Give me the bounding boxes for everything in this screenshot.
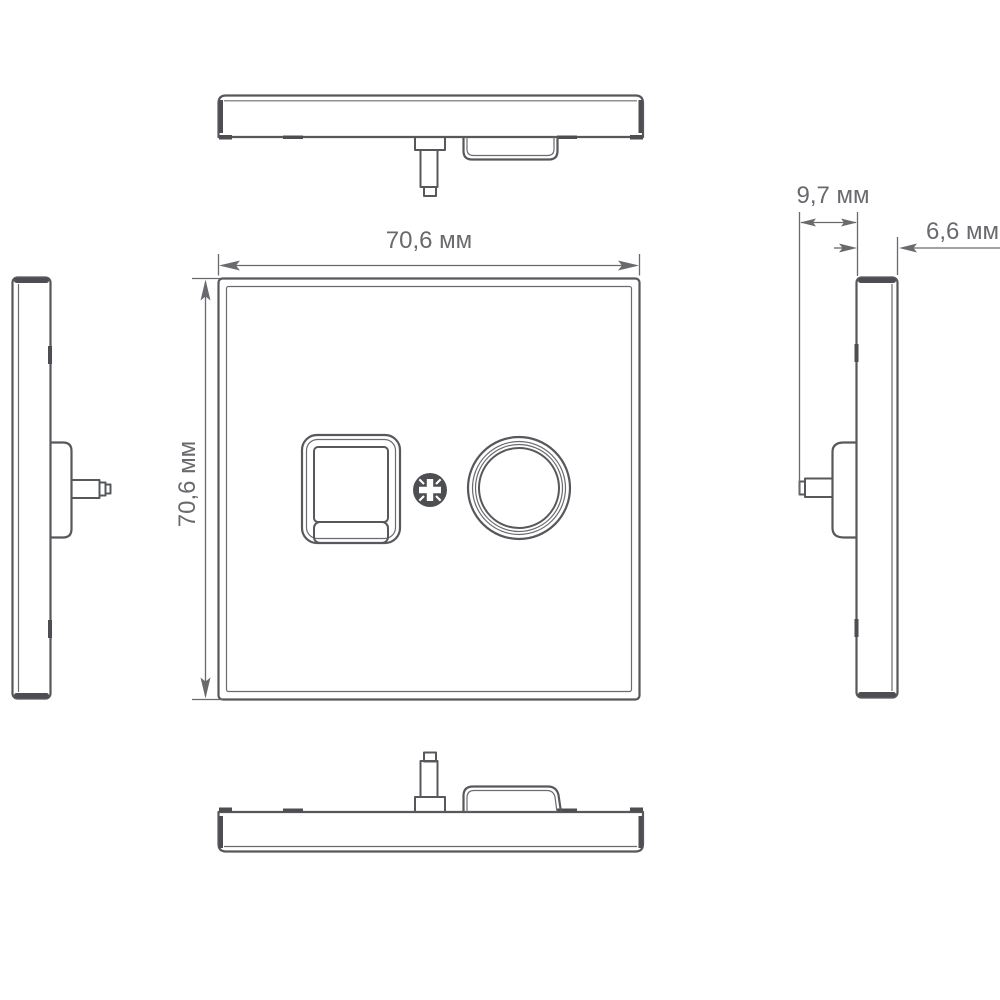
faceplate-dimension-drawing: 70,6 мм 70,6 мм 9,7 мм 6,6 мм [0, 0, 1000, 1000]
bottom-view [219, 753, 644, 852]
clip [557, 136, 577, 140]
foot [219, 135, 232, 140]
mounting-stem [800, 479, 833, 498]
connector-housing [833, 443, 857, 538]
mounting-stem [415, 753, 445, 813]
mounting-stem [415, 137, 445, 196]
foot [219, 808, 232, 813]
drawing-canvas [0, 0, 1000, 1000]
top-view [219, 96, 644, 197]
pozidriv-screw-icon [413, 473, 447, 507]
foot [630, 808, 643, 813]
connector-housing [464, 137, 558, 160]
faceplate-outline [857, 278, 898, 698]
connector-housing [464, 787, 562, 813]
thickness-dimension-label: 6,6 мм [926, 220, 999, 244]
width-dimension-line [219, 254, 640, 276]
width-dimension-label: 70,6 мм [386, 229, 472, 253]
right-side-view [800, 278, 898, 698]
left-side-view [13, 278, 111, 699]
mounting-stem [72, 480, 111, 498]
clip [283, 136, 303, 140]
foot [630, 135, 643, 140]
connector-housing [51, 443, 72, 538]
depth-dimension-line [800, 212, 858, 495]
square-connector-opening [302, 435, 400, 543]
faceplate-outline [219, 812, 644, 852]
round-connector-opening [468, 437, 570, 539]
height-dimension-label: 70,6 мм [176, 441, 200, 527]
faceplate-outline [219, 96, 644, 138]
front-view [219, 279, 640, 700]
depth-dimension-label: 9,7 мм [796, 184, 869, 208]
clip [283, 809, 303, 813]
